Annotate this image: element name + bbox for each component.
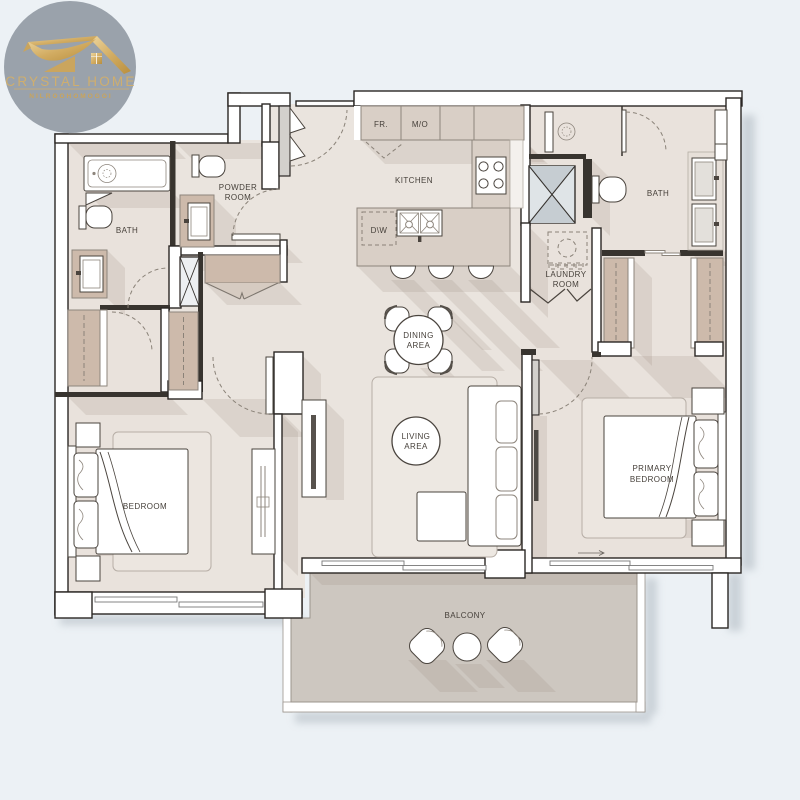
svg-text:AREA: AREA [404,442,428,451]
svg-text:D\W: D\W [371,226,388,235]
svg-text:ROOM: ROOM [225,193,252,202]
svg-text:POWDER: POWDER [219,183,257,192]
svg-text:BALCONY: BALCONY [444,611,485,620]
svg-text:BATH: BATH [647,189,669,198]
svg-text:DINING: DINING [403,331,433,340]
svg-text:LAUNDRY: LAUNDRY [546,270,587,279]
svg-text:NILROOHOMOGOI: NILROOHOMOGOI [29,93,112,100]
svg-text:AREA: AREA [407,341,431,350]
svg-text:KITCHEN: KITCHEN [395,176,433,185]
svg-text:BATH: BATH [116,226,138,235]
svg-text:FR.: FR. [374,120,388,129]
svg-text:BEDROOM: BEDROOM [123,502,167,511]
svg-text:BEDROOM: BEDROOM [630,475,674,484]
svg-text:PRIMARY: PRIMARY [632,464,671,473]
svg-text:LIVING: LIVING [402,432,431,441]
svg-text:M/O: M/O [412,120,428,129]
svg-text:ROOM: ROOM [553,280,580,289]
svg-text:CRYSTAL HOME: CRYSTAL HOME [5,74,136,89]
